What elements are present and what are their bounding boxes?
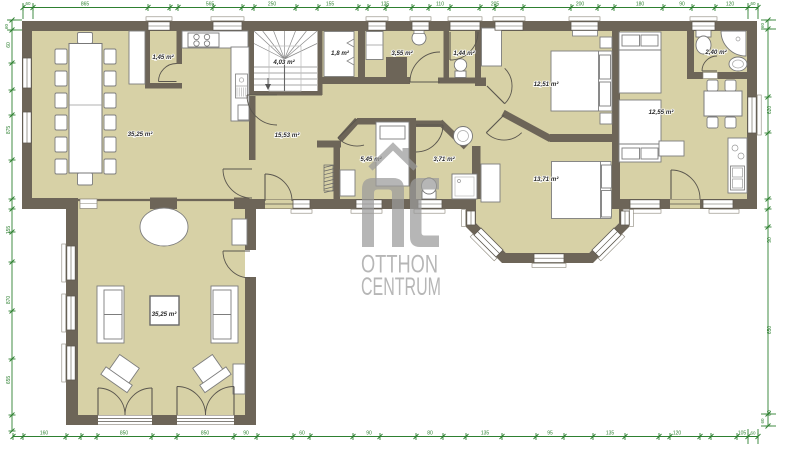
svg-text:80: 80: [427, 431, 433, 437]
svg-text:135: 135: [606, 431, 615, 437]
svg-text:60: 60: [25, 1, 31, 6]
svg-text:655: 655: [6, 376, 12, 385]
svg-text:200: 200: [576, 2, 585, 8]
svg-text:120: 120: [726, 2, 735, 8]
svg-text:120: 120: [673, 431, 682, 437]
svg-text:60: 60: [767, 410, 773, 416]
svg-text:3,71 m²: 3,71 m²: [433, 156, 455, 163]
svg-text:35,25 m²: 35,25 m²: [128, 131, 154, 138]
svg-text:125: 125: [381, 2, 390, 8]
svg-text:870: 870: [6, 296, 12, 305]
svg-text:90: 90: [243, 431, 249, 437]
svg-text:4,03 m²: 4,03 m²: [272, 59, 295, 66]
svg-text:15,53 m²: 15,53 m²: [275, 132, 301, 139]
svg-text:865: 865: [81, 2, 90, 8]
svg-text:155: 155: [326, 2, 335, 8]
svg-text:60: 60: [299, 431, 305, 437]
svg-text:1,8 m²: 1,8 m²: [331, 50, 350, 57]
svg-text:35,25 m²: 35,25 m²: [152, 311, 178, 318]
svg-text:1,44 m²: 1,44 m²: [453, 50, 475, 57]
svg-text:13,71 m²: 13,71 m²: [534, 176, 560, 183]
svg-text:60: 60: [760, 23, 765, 29]
svg-text:850: 850: [201, 431, 210, 437]
svg-text:2,40 m²: 2,40 m²: [704, 49, 727, 56]
svg-text:155: 155: [6, 226, 12, 235]
svg-text:12,55 m²: 12,55 m²: [649, 109, 675, 116]
svg-text:205: 205: [491, 2, 500, 8]
svg-text:60: 60: [760, 418, 765, 424]
svg-text:90: 90: [767, 237, 773, 243]
svg-text:1,45 m²: 1,45 m²: [152, 54, 174, 61]
svg-text:60: 60: [750, 1, 756, 6]
svg-text:850: 850: [120, 431, 129, 437]
svg-text:875: 875: [6, 126, 12, 135]
svg-text:CENTRUM: CENTRUM: [361, 273, 441, 301]
svg-text:60: 60: [750, 431, 756, 436]
svg-text:95: 95: [547, 431, 553, 437]
svg-text:3,55 m²: 3,55 m²: [391, 50, 413, 57]
svg-text:60: 60: [4, 24, 9, 30]
svg-text:250: 250: [268, 2, 277, 8]
svg-text:90: 90: [679, 2, 685, 8]
svg-text:60: 60: [6, 42, 12, 48]
svg-text:110: 110: [436, 2, 444, 8]
svg-text:90: 90: [366, 431, 372, 437]
svg-text:12,51 m²: 12,51 m²: [534, 81, 560, 88]
svg-text:565: 565: [206, 2, 215, 8]
svg-text:180: 180: [636, 2, 645, 8]
svg-text:650: 650: [767, 326, 773, 335]
svg-text:105: 105: [738, 431, 747, 437]
svg-text:620: 620: [767, 106, 773, 115]
svg-text:160: 160: [40, 431, 49, 437]
svg-text:135: 135: [481, 431, 490, 437]
